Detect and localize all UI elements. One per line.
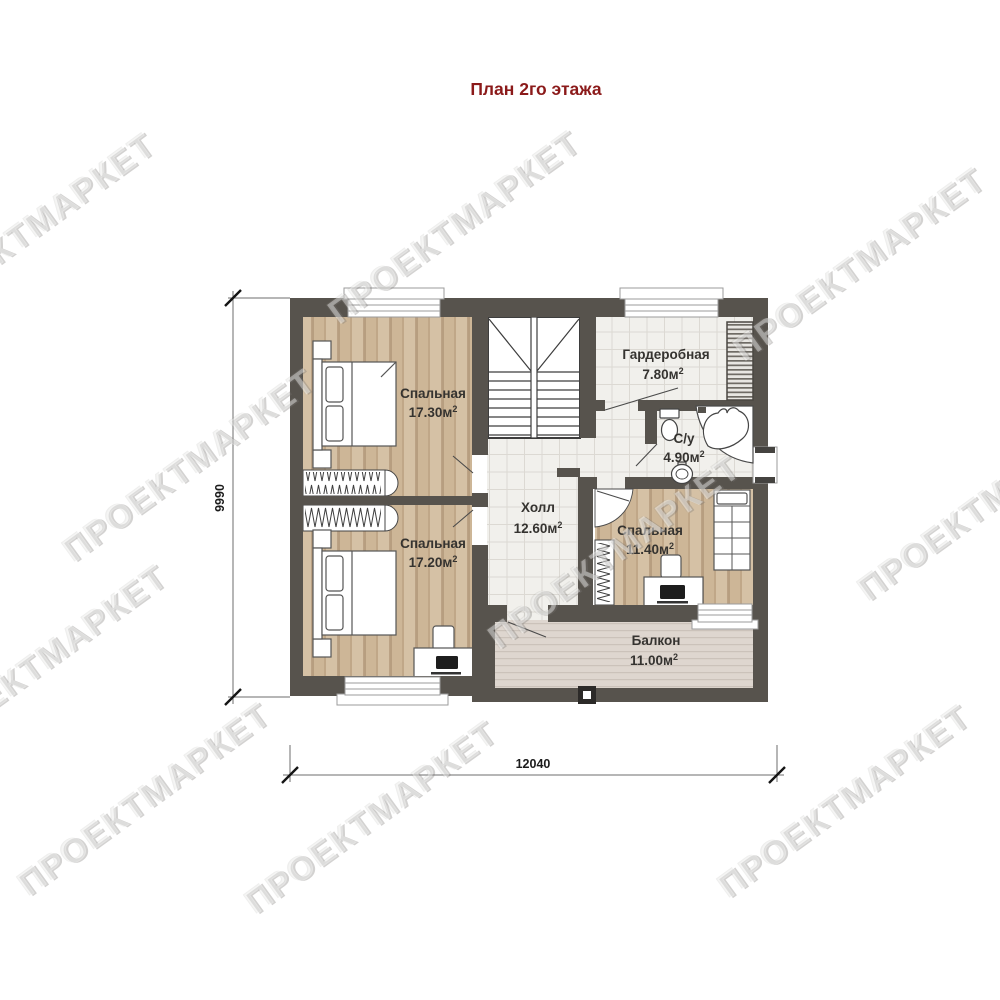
dimension-width-label: 12040 [516, 757, 551, 771]
bed-bedroom-3 [714, 490, 750, 570]
room-area-wardrobe: 7.80м2 [642, 366, 683, 382]
floor-balcony [495, 620, 753, 688]
floor-plan-drawing: Спальная 17.30м2 Спальная 17.20м2 Холл 1… [0, 0, 1000, 1000]
room-label-wardrobe: Гардеробная [622, 347, 709, 362]
faucet-icon [698, 407, 706, 413]
wardrobe-bedroom-3 [595, 540, 614, 605]
wardrobe-cabinet [727, 322, 753, 400]
window-top-left [348, 299, 440, 317]
window-bottom-left [345, 677, 440, 695]
room-area-hall: 12.60м2 [514, 520, 563, 536]
window-bottom-left-sill [337, 694, 448, 705]
balcony-post [578, 686, 596, 704]
room-label-bedroom-1: Спальная [400, 386, 466, 401]
room-label-balcony: Балкон [632, 633, 681, 648]
room-area-bedroom-3: 11.40м2 [626, 541, 674, 557]
room-label-hall: Холл [521, 500, 555, 515]
window-top-right-sill [620, 288, 723, 299]
room-area-bedroom-1: 17.30м2 [409, 404, 458, 420]
room-area-bathroom: 4.90м2 [663, 449, 704, 465]
window-bedroom-3 [698, 604, 752, 622]
dimension-height-label: 9990 [213, 484, 227, 512]
dimension-bottom: 12040 [282, 745, 785, 783]
window-top-left-sill [344, 288, 444, 299]
staircase [488, 317, 580, 438]
dimension-left: 9990 [213, 290, 290, 705]
room-label-bedroom-2: Спальная [400, 536, 466, 551]
window-top-right [625, 299, 718, 317]
room-area-balcony: 11.00м2 [630, 652, 678, 668]
floor-plan-page: План 2го этажа [0, 0, 1000, 1000]
page-title: План 2го этажа [470, 79, 601, 100]
room-label-bedroom-3: Спальная [617, 523, 683, 538]
laptop-icon [660, 585, 685, 599]
room-label-bathroom: С/у [673, 431, 695, 446]
laptop-icon [436, 656, 458, 669]
room-area-bedroom-2: 17.20м2 [409, 554, 458, 570]
